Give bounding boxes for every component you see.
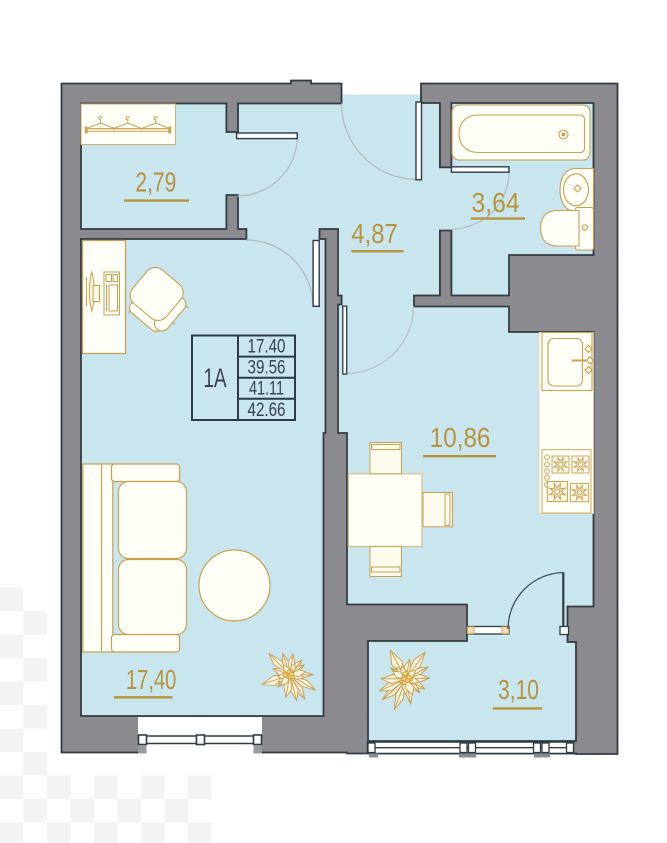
- svg-text:42.66: 42.66: [248, 400, 286, 421]
- svg-text:3,64: 3,64: [472, 187, 520, 218]
- svg-text:17,40: 17,40: [126, 664, 176, 695]
- svg-text:1A: 1A: [204, 363, 227, 393]
- svg-text:2,79: 2,79: [135, 167, 176, 198]
- svg-text:4,87: 4,87: [351, 218, 397, 249]
- svg-text:17.40: 17.40: [248, 337, 286, 358]
- svg-text:41.11: 41.11: [249, 379, 284, 400]
- svg-text:10,86: 10,86: [430, 422, 491, 453]
- svg-text:3,10: 3,10: [498, 674, 539, 705]
- svg-text:39.56: 39.56: [248, 358, 286, 379]
